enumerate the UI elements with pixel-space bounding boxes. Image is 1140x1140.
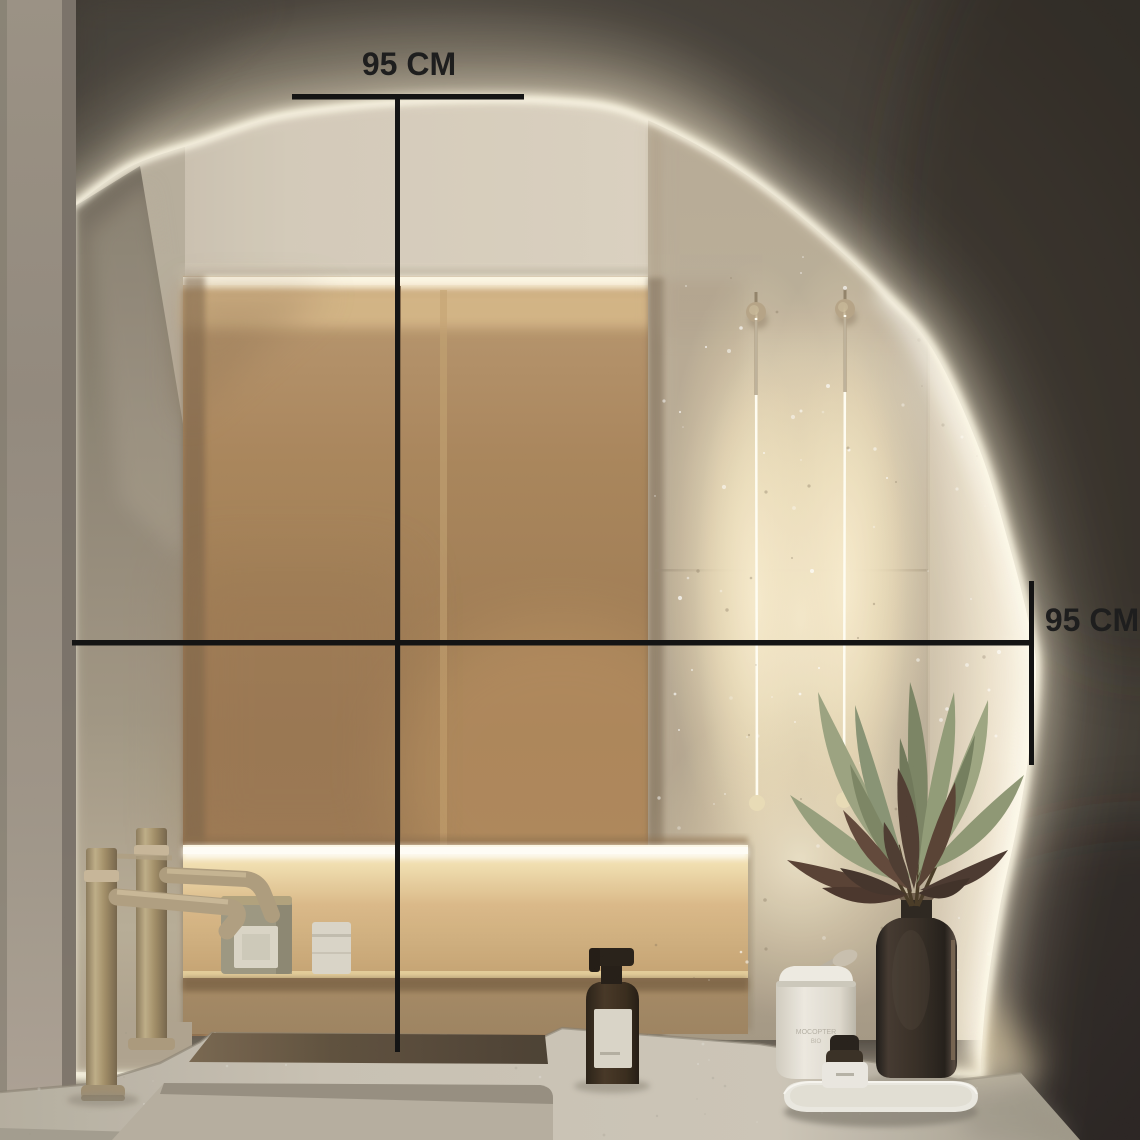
svg-text:95 CM: 95 CM	[1045, 602, 1139, 638]
svg-text:95 CM: 95 CM	[362, 46, 456, 82]
